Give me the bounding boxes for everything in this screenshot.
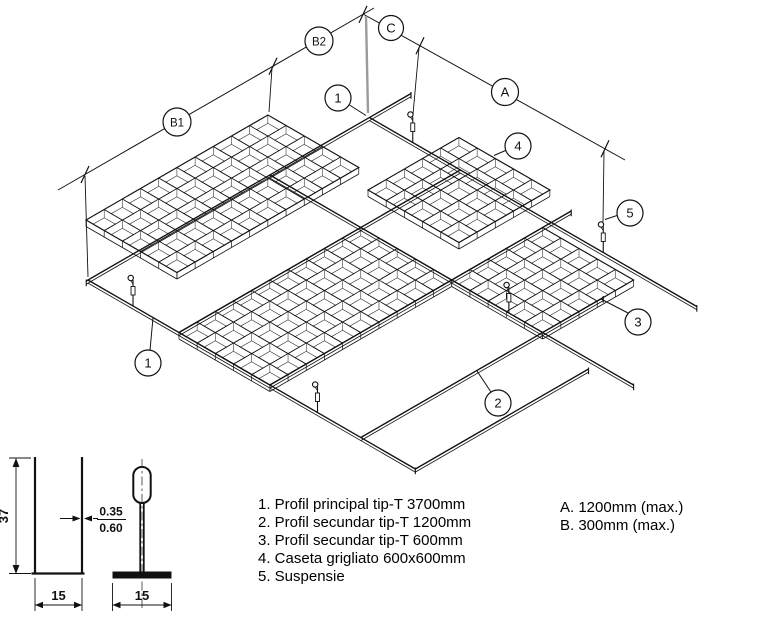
dim-37-label: 37 — [0, 509, 11, 523]
extension-line-gray — [366, 16, 368, 113]
ceiling-system-drawing-page: B1 B2 C A 1 1 2 3 4 — [0, 0, 757, 630]
legend-item: 4. Caseta grigliato 600x600mm — [258, 550, 471, 568]
dim-label-b1: B1 — [170, 118, 184, 130]
legend-item: 3. Profil secundar tip-T 600mm — [258, 532, 471, 550]
callout-3-label: 3 — [634, 315, 641, 330]
dim-15-left-label: 15 — [51, 588, 65, 603]
callout-1-label: 1 — [334, 91, 341, 106]
dimension-lines — [58, 6, 625, 277]
legend: 1. Profil principal tip-T 3700mm 2. Prof… — [258, 496, 471, 586]
dim-label-b2: B2 — [312, 37, 326, 49]
legend-item: 5. Suspensie — [258, 568, 471, 586]
dimension-badges: B1 B2 C A — [163, 16, 519, 137]
callout-5-label: 5 — [626, 206, 633, 221]
callout-2-label: 2 — [494, 396, 501, 411]
dim-label-c: C — [386, 21, 395, 36]
dim-tick — [269, 58, 277, 75]
dim-37 — [9, 458, 31, 574]
u-channel-section — [32, 457, 85, 575]
callout-leader — [150, 318, 153, 350]
legend-item: 2. Profil secundar tip-T 1200mm — [258, 514, 471, 532]
note-b: B. 300mm (max.) — [560, 517, 683, 535]
callout-leader — [350, 105, 367, 116]
dim-tick — [601, 140, 609, 157]
thickness-bottom-label: 0.60 — [99, 521, 123, 535]
callout-1-label: 1 — [144, 356, 151, 371]
note-a: A. 1200mm (max.) — [560, 499, 683, 517]
thickness-top-label: 0.35 — [99, 505, 123, 519]
profile-cross-sections: 37 15 0.35 0.60 — [0, 457, 172, 611]
dim-tick — [416, 37, 424, 54]
callout-leader — [477, 371, 491, 392]
callout-leader — [605, 216, 617, 220]
extension-line — [85, 176, 88, 277]
dim-15-right-label: 15 — [135, 588, 149, 603]
extension-line — [603, 151, 604, 222]
callout-leader — [601, 299, 628, 313]
extension-line — [413, 48, 419, 114]
legend-item: 1. Profil principal tip-T 3700mm — [258, 496, 471, 514]
callout-4-label: 4 — [514, 139, 521, 154]
dim-label-a: A — [501, 85, 510, 100]
callout-leader — [494, 151, 506, 156]
dimension-notes: A. 1200mm (max.) B. 300mm (max.) — [560, 499, 683, 535]
